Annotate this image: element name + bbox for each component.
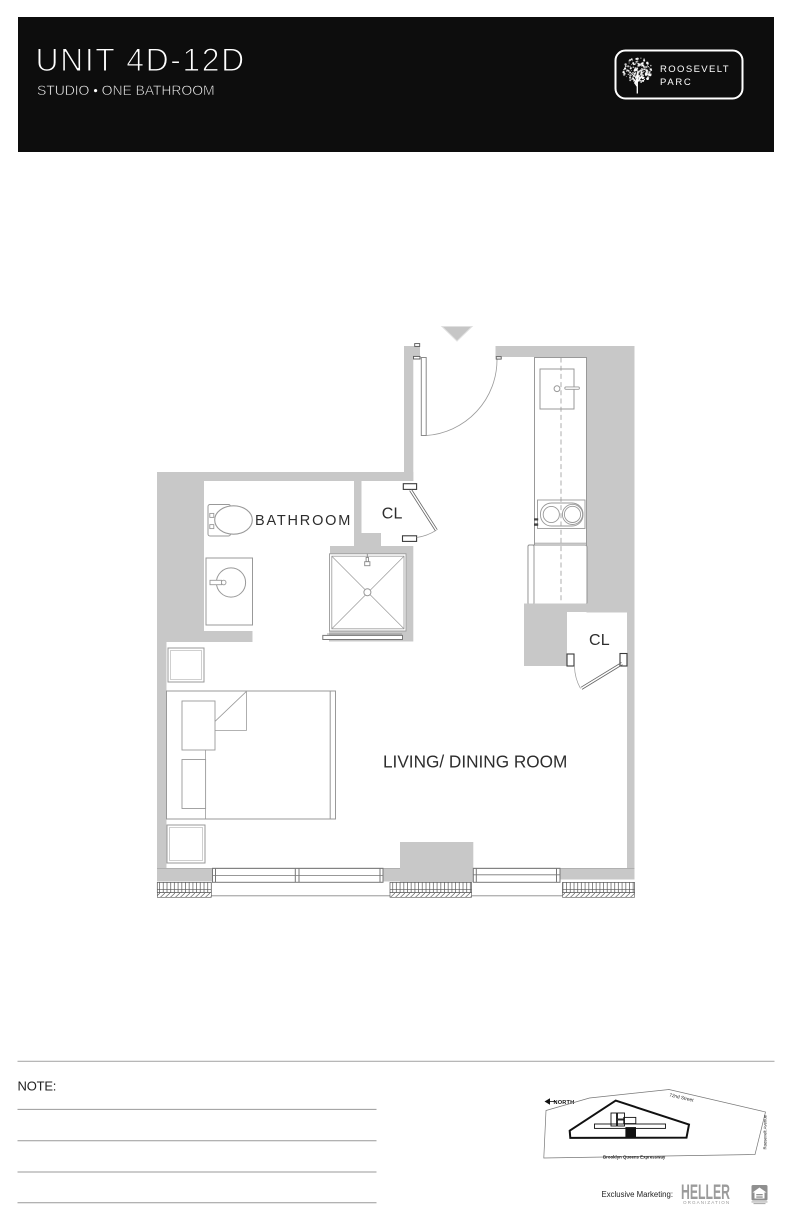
svg-text:CL: CL (382, 506, 403, 523)
svg-text:72nd Street: 72nd Street (669, 1092, 695, 1104)
svg-text:Brooklyn Queens Expressway: Brooklyn Queens Expressway (603, 1155, 666, 1160)
svg-text:Roosevelt Avenue: Roosevelt Avenue (763, 1114, 768, 1149)
svg-text:Exclusive Marketing:: Exclusive Marketing: (602, 1190, 674, 1199)
svg-text:BATHROOM: BATHROOM (255, 513, 352, 529)
svg-text:LIVING/ DINING ROOM: LIVING/ DINING ROOM (383, 752, 567, 772)
svg-text:ORGANIZATION: ORGANIZATION (683, 1200, 730, 1205)
svg-text:NOTE:: NOTE: (18, 1079, 57, 1094)
svg-text:CL: CL (589, 632, 610, 649)
